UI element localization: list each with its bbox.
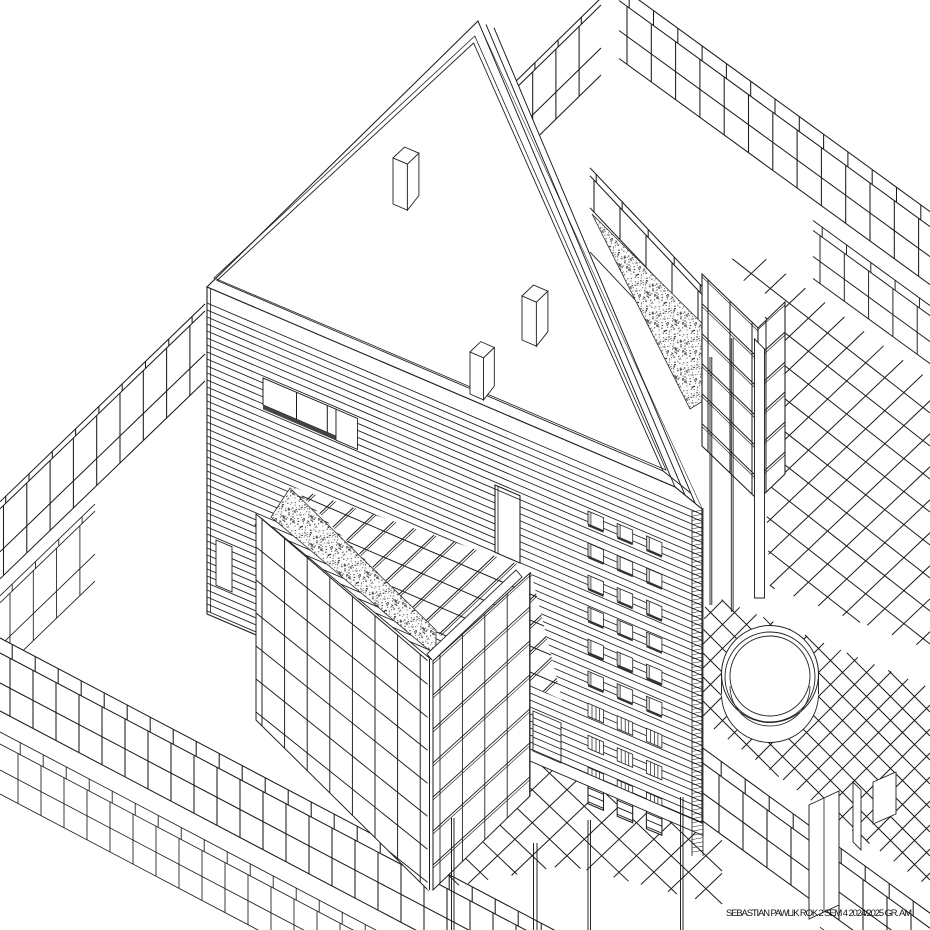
svg-text:SEBASTIAN PAWLIK ROK 2 SEM 4 2: SEBASTIAN PAWLIK ROK 2 SEM 4 2024/2025 G… — [726, 907, 912, 918]
